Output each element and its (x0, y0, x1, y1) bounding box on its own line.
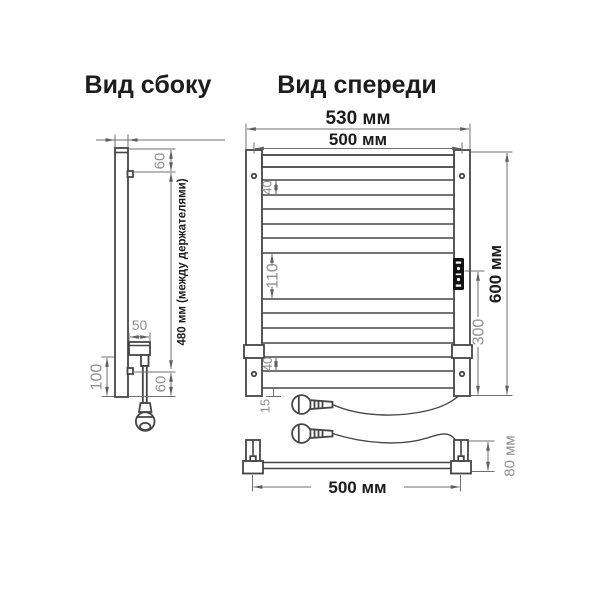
dim-label-80mm: 80 мм (501, 435, 518, 476)
top-view: 500 мм 80 мм (243, 424, 518, 497)
side-post-profile (115, 148, 128, 397)
power-plug-front-icon (292, 395, 332, 414)
dim-label-110: 110 (265, 263, 282, 289)
dim-label-40-bottom: 40 (260, 357, 275, 371)
dim-label-600mm: 600 мм (486, 245, 505, 303)
rung-lines (262, 180, 454, 388)
control-panel (453, 258, 464, 290)
front-view-dimensions: 530 мм 500 мм 40 110 40 15 (246, 108, 513, 413)
top-tube (262, 155, 454, 167)
dim-label-50: 50 (132, 317, 148, 333)
dim-label-15: 15 (258, 399, 273, 413)
power-plug-top-icon (292, 424, 332, 443)
top-holder-peg (128, 171, 134, 177)
front-view-title: Вид спереди (277, 71, 437, 99)
dim-label-500mm-top: 500 мм (328, 478, 386, 497)
dim-label-60-bottom: 60 (152, 376, 169, 393)
mount-screw-holes (252, 174, 464, 376)
side-view: 60 480 мм (между держателями) 50 100 60 (89, 135, 225, 431)
power-cable-top (292, 424, 455, 443)
top-view-dimensions: 500 мм 80 мм (253, 435, 519, 497)
dim-label-100: 100 (89, 364, 106, 391)
top-view-right-block (451, 440, 471, 474)
drawing-svg: Вид сбоку Вид спереди (0, 0, 600, 600)
front-view: 530 мм 500 мм 40 110 40 15 (244, 108, 513, 415)
dim-label-40-top: 40 (260, 180, 275, 194)
dim-label-60-top: 60 (151, 153, 168, 170)
power-cable-front (292, 395, 458, 415)
dim-label-530mm: 530 мм (325, 108, 390, 129)
side-view-title: Вид сбоку (85, 71, 212, 99)
dim-label-500mm-front: 500 мм (329, 130, 387, 149)
top-view-left-block (243, 440, 263, 474)
side-view-depth-reference (96, 135, 225, 148)
top-view-tube (263, 463, 451, 469)
dim-label-480mm: 480 мм (между держателями) (177, 178, 189, 345)
dim-label-300: 300 (471, 319, 488, 346)
bottom-holder-peg (128, 368, 134, 374)
side-view-dimensions: 60 480 мм (между держателями) 50 100 60 (89, 149, 189, 397)
towel-rail-technical-drawing: Вид сбоку Вид спереди (0, 0, 600, 600)
power-plug-side-icon (136, 403, 155, 431)
left-bracket (244, 345, 264, 358)
right-bracket (452, 345, 472, 358)
